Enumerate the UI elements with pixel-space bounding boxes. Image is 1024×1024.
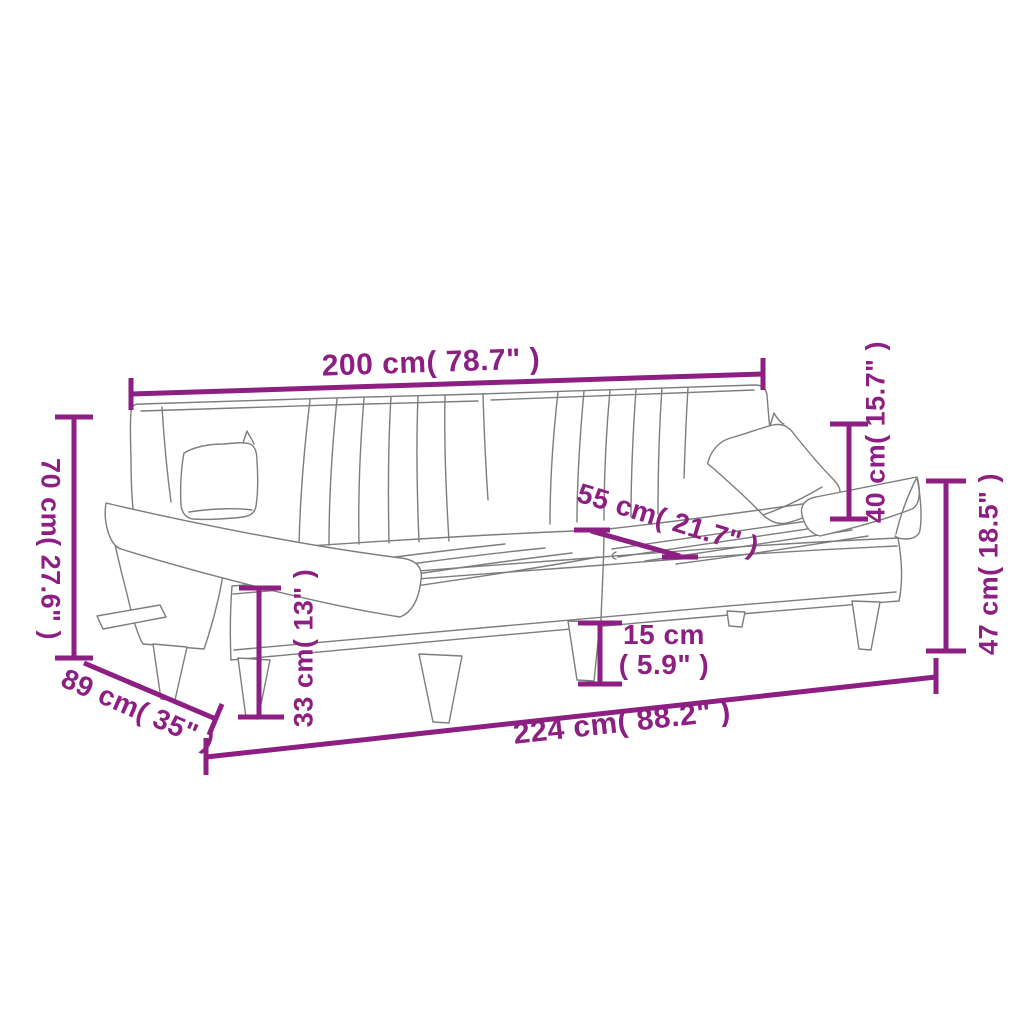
diagram-canvas: 200 cm( 78.7" ) 70 cm( 27.6" ) 89 cm( 35… (0, 0, 1024, 1024)
leg-front-left (238, 658, 270, 719)
sofa-line-art (97, 385, 921, 723)
left-pillow (181, 431, 258, 519)
dimension-label-seat-height: 33 cm( 13" ) (289, 569, 320, 727)
dimension-label-armrest-height: 47 cm( 18.5" ) (974, 473, 1005, 655)
dimension-label-back-height: 70 cm( 27.6" ) (35, 458, 66, 640)
leg-height-inch: ( 5.9" ) (619, 650, 709, 680)
leg-mid-left (419, 654, 462, 723)
leg-far-left (153, 644, 187, 700)
leg-right (852, 601, 880, 650)
dim-armrest-height (926, 481, 966, 651)
leg-height-cm: 15 cm (619, 620, 709, 650)
dimension-label-leg-height: 15 cm ( 5.9" ) (619, 620, 709, 680)
dimension-label-back-width: 200 cm( 78.7" ) (321, 342, 541, 383)
leg-center (568, 621, 600, 681)
dimension-label-backrest-above-seat: 40 cm( 15.7" ) (861, 341, 892, 523)
leg-back-stub (727, 611, 745, 627)
